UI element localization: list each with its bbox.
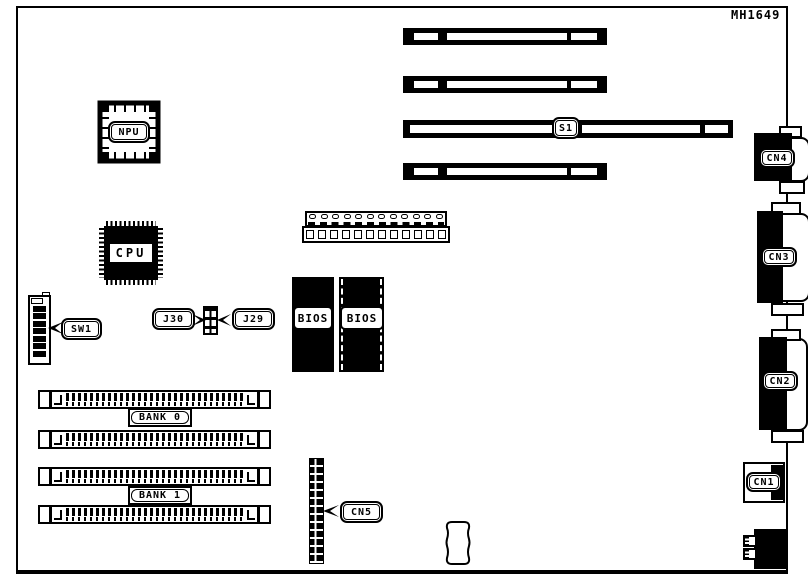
bios1-label: BIOS [293, 306, 333, 330]
power-connector-body [302, 226, 450, 243]
bank0-label: BANK 0 [128, 408, 192, 427]
s1-label: S1 [552, 117, 580, 139]
j29-pointer-icon [217, 313, 231, 327]
isa-slot-1 [403, 28, 607, 45]
motherboard-diagram: MH1649 S1 [0, 0, 808, 583]
dip-position [33, 351, 46, 357]
npu-label: NPU [108, 121, 150, 143]
cn5-label: CN5 [340, 501, 383, 523]
simm-slot-2 [38, 430, 271, 449]
slot-segment [571, 168, 597, 175]
simm-slot-1 [38, 390, 271, 409]
dip-position [33, 321, 46, 327]
dip-position [33, 336, 46, 342]
power-connector-pins [305, 211, 447, 227]
slot-segment [582, 125, 700, 133]
bios2-label: BIOS [340, 306, 384, 330]
cn5-pointer-icon [323, 504, 339, 518]
dip-position [31, 298, 43, 304]
slot-segment [447, 33, 567, 40]
dip-position [33, 343, 46, 349]
slot-segment [447, 168, 567, 175]
slot-segment [447, 81, 567, 88]
j29-label: J29 [232, 308, 275, 330]
slot-segment [414, 81, 438, 88]
cn1-label: CN1 [746, 472, 782, 492]
slot-segment [705, 125, 728, 133]
cn2-label: CN2 [762, 371, 798, 391]
cn3-mount-tab [771, 303, 804, 316]
simm-slot-3 [38, 467, 271, 486]
power-dash-row [308, 222, 444, 225]
jack-plug [743, 535, 757, 547]
cn4-label: CN4 [759, 148, 795, 168]
part-number: MH1649 [731, 8, 780, 22]
cn2-mount-tab [771, 430, 804, 443]
dip-position [33, 313, 46, 319]
keyboard-connector [754, 529, 788, 569]
cn5-connector [309, 458, 324, 564]
slot-segment [571, 33, 597, 40]
jack-plug [743, 548, 757, 560]
cn3-label: CN3 [761, 247, 797, 267]
simm-slot-4 [38, 505, 271, 524]
isa-slot-4 [403, 163, 607, 180]
slot-segment [571, 81, 597, 88]
power-pin-row [308, 214, 444, 219]
dip-position [33, 306, 46, 312]
slot-segment [414, 168, 438, 175]
j30-label: J30 [152, 308, 195, 330]
bank1-label: BANK 1 [128, 486, 192, 505]
dip-position [33, 328, 46, 334]
cpu-chip: CPU [99, 221, 163, 285]
cpu-label: CPU [110, 244, 152, 262]
slot-segment [414, 33, 438, 40]
isa-slot-2 [403, 76, 607, 93]
battery-outline [442, 520, 474, 566]
cn4-mount-tab [779, 181, 805, 194]
sw1-label: SW1 [61, 318, 102, 340]
slot-segment [410, 125, 552, 133]
